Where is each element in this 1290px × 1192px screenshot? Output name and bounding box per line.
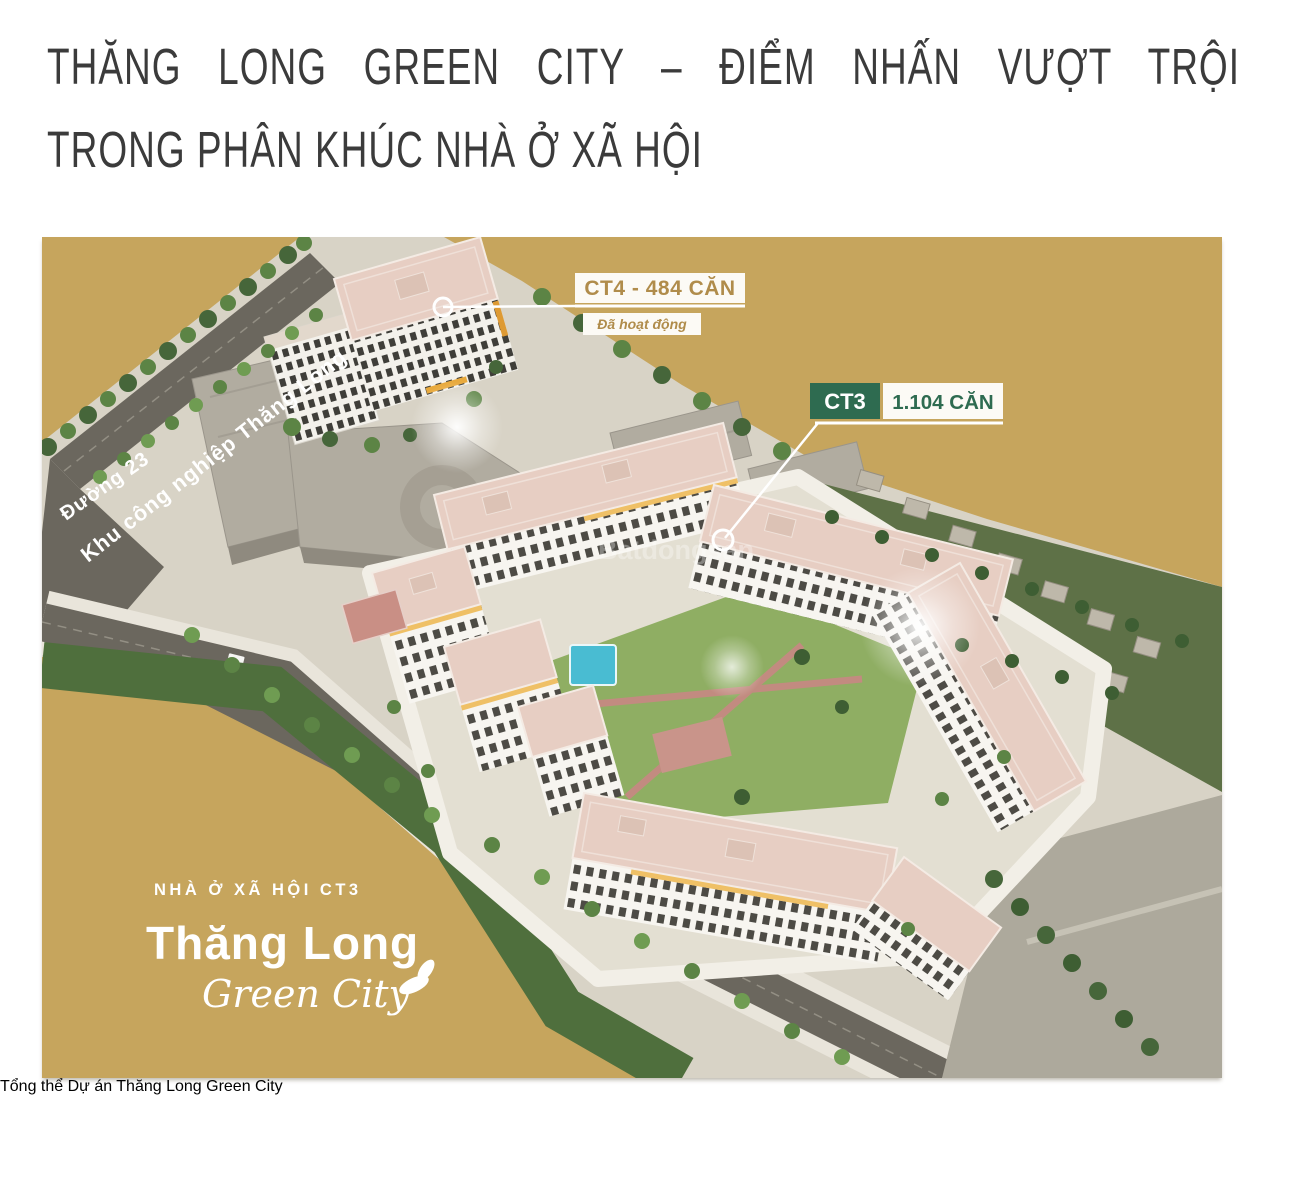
masterplan-image: Batdongsan CT4 - 484 CĂN Đã hoạt động CT…: [42, 237, 1222, 1078]
article-heading: THĂNG LONG GREEN CITY – ĐIỂM NHẤN VƯỢT T…: [47, 26, 1240, 192]
ct3-code: CT3: [824, 389, 866, 414]
image-caption: Tổng thể Dự án Thăng Long Green City: [0, 1078, 1290, 1096]
heading-line-1: THĂNG LONG GREEN CITY – ĐIỂM NHẤN VƯỢT T…: [47, 26, 1240, 109]
swimming-pool: [570, 645, 616, 685]
logo-tagline: NHÀ Ở XÃ HỘI CT3: [154, 879, 362, 899]
logo-name: Thăng Long: [146, 917, 419, 969]
ct4-marker: [434, 298, 452, 316]
ct3-units: 1.104 CĂN: [892, 391, 993, 414]
masterplan-figure: Batdongsan CT4 - 484 CĂN Đã hoạt động CT…: [42, 237, 1222, 1078]
heading-line-2: TRONG PHÂN KHÚC NHÀ Ở XÃ HỘI: [47, 109, 1240, 192]
logo-subname: Green City: [202, 972, 411, 1016]
ct3-marker: [713, 530, 733, 550]
ct4-label: CT4 - 484 CĂN: [584, 277, 735, 300]
ct4-status: Đã hoạt động: [597, 316, 687, 332]
